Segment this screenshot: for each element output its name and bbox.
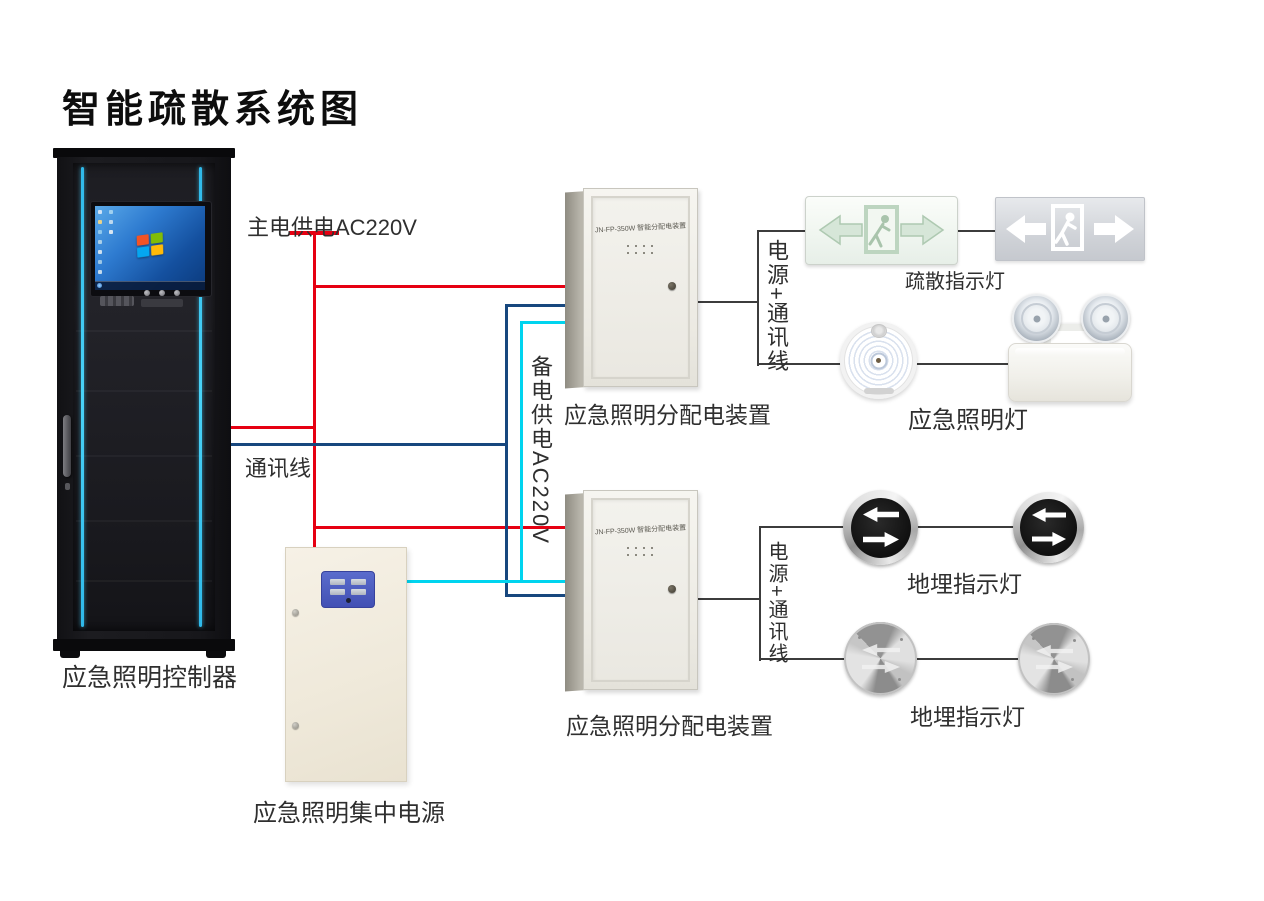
cabinet-foot [60, 651, 80, 658]
box-door: JN-FP-350W 智能分配电装置 [591, 498, 690, 682]
box-front-face: JN-FP-350W 智能分配电装置 [583, 188, 698, 387]
monitor-screen-windows-desktop [95, 206, 205, 290]
etched-arrow-icon [1036, 645, 1073, 657]
central-power-label: 应急照明集中电源 [253, 793, 445, 828]
wire-device-line [915, 363, 1012, 365]
box-model-text: JN-FP-350W 智能分配电装置 [593, 523, 688, 538]
box-lock-knob [668, 585, 676, 593]
wire-main-power-line [314, 285, 573, 288]
comm-line-label: 通讯线 [245, 451, 311, 483]
twin-spot-emergency-light [1008, 294, 1130, 400]
desktop-icon [98, 240, 102, 244]
box-door: JN-FP-350W 智能分配电装置 [591, 196, 690, 379]
cabinet-accent-strip-left [81, 167, 84, 627]
windows-logo-icon [137, 232, 164, 258]
wire-device-line [697, 301, 759, 303]
page-title: 智能疏散系统图 [62, 78, 363, 133]
screw-icon [292, 609, 299, 616]
central-power-supply-box [285, 547, 407, 782]
control-button-strip [100, 296, 134, 306]
box-front-face: JN-FP-350W 智能分配电装置 [583, 490, 698, 690]
desktop-icon [98, 250, 102, 254]
etched-arrow-icon [862, 644, 900, 656]
etched-arrow-icon [1036, 661, 1073, 673]
arrow-right-icon [1032, 532, 1066, 546]
wire-device-line [759, 526, 761, 661]
cabinet-base [53, 639, 235, 651]
evacuation-system-diagram: 智能疏散系统图 [0, 0, 1264, 901]
control-knob [174, 290, 180, 296]
wire-device-line [758, 230, 807, 232]
cabinet-shelf-line [76, 455, 212, 457]
wire-comm-line [507, 304, 573, 307]
controller-label: 应急照明控制器 [62, 658, 237, 694]
lamp-head-left [1012, 294, 1061, 343]
screw-icon [292, 722, 299, 729]
control-panel-bar [141, 299, 183, 307]
distribution-upper-label: 应急照明分配电装置 [564, 396, 771, 430]
wire-comm-line [507, 594, 570, 597]
lamp-head-right [1081, 294, 1130, 343]
exit-sign-gray [995, 197, 1145, 261]
ceiling-emergency-lamp [840, 322, 917, 399]
cabinet-door-handle [63, 415, 71, 477]
wire-comm-line [231, 443, 508, 446]
control-knob [159, 290, 165, 296]
wire-main-power-line [313, 233, 316, 547]
desktop-icon [98, 230, 102, 234]
wire-comm-line [505, 304, 508, 597]
distribution-box-upper: JN-FP-350W 智能分配电装置 [565, 188, 698, 387]
cabinet-keyhole [65, 483, 70, 490]
wire-backup-power-line [404, 580, 570, 583]
exit-sign-pictogram [996, 198, 1144, 260]
exit-sign-green [805, 196, 958, 265]
cabinet-shelf-line [76, 520, 212, 522]
exit-signs-label: 疏散指示灯 [905, 265, 1005, 294]
cabinet-foot [206, 651, 226, 658]
control-knob [144, 290, 150, 296]
arrow-left-icon [1032, 508, 1066, 522]
wire-main-power-line [231, 426, 316, 429]
desktop-icon [109, 220, 113, 224]
desktop-icon [98, 260, 102, 264]
cabinet-shelf-line [76, 330, 212, 332]
desktop-icon [98, 220, 102, 224]
box-model-text: JN-FP-350W 智能分配电装置 [593, 221, 688, 236]
emergency-lamp-label: 应急照明灯 [908, 400, 1028, 435]
buried-light-steel [1018, 623, 1090, 695]
buried-lights-lower-label: 地埋指示灯 [910, 698, 1025, 732]
cabinet-shelf-line [76, 390, 212, 392]
cabinet-shelf-line [76, 580, 212, 582]
arrow-right-icon [863, 532, 899, 547]
desktop-icon [98, 210, 102, 214]
wire-device-line [760, 526, 845, 528]
buried-lights-upper-label: 地埋指示灯 [907, 565, 1022, 599]
wire-device-line [697, 598, 761, 600]
buried-light-steel [844, 622, 917, 695]
wire-device-line [916, 526, 1015, 528]
lamp-brand-strip [864, 388, 894, 394]
arrow-left-icon [863, 507, 899, 522]
box-indicator-dots [627, 245, 655, 256]
power-comm-label-lower: 电源+通讯线 [762, 541, 791, 665]
buried-light-black [1013, 492, 1084, 563]
power-display-panel [321, 571, 375, 608]
power-comm-label-upper: 电源+通讯线 [760, 239, 792, 374]
taskbar [95, 281, 205, 290]
lamp-center [870, 352, 887, 369]
desktop-icon [109, 210, 113, 214]
desktop-icon [98, 270, 102, 274]
backup-power-line-label: 备电供电AC220V [524, 355, 556, 545]
desktop-icon [109, 230, 113, 234]
distribution-box-lower: JN-FP-350W 智能分配电装置 [565, 490, 698, 690]
wire-device-line [757, 230, 759, 366]
etched-arrow-icon [862, 661, 900, 673]
main-power-line-label: 主电供电AC220V [247, 210, 417, 242]
wire-backup-power-line [522, 321, 570, 324]
lamp-sensor [871, 324, 887, 338]
panel-button [346, 598, 351, 603]
exit-sign-pictogram [806, 197, 957, 264]
box-lock-knob [668, 282, 676, 290]
wire-backup-power-line [520, 321, 523, 583]
wire-device-line [915, 658, 1020, 660]
box-indicator-dots [627, 547, 655, 558]
wire-device-line [954, 230, 997, 232]
distribution-lower-label: 应急照明分配电装置 [566, 707, 773, 741]
start-orb-icon [97, 283, 102, 288]
buried-light-black [843, 490, 918, 565]
twin-light-body [1008, 343, 1132, 402]
